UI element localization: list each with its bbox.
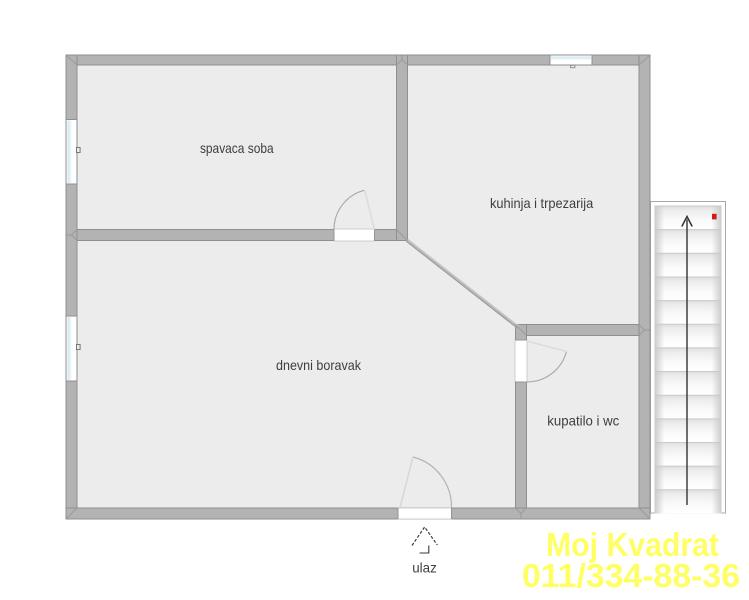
svg-text:kupatilo i wc: kupatilo i wc (547, 413, 619, 429)
svg-text:ulaz: ulaz (412, 560, 437, 576)
svg-text:011/334-88-36: 011/334-88-36 (522, 557, 740, 594)
svg-text:spavaca soba: spavaca soba (200, 140, 274, 156)
svg-text:dnevni boravak: dnevni boravak (276, 357, 362, 373)
svg-text:kuhinja i trpezarija: kuhinja i trpezarija (490, 195, 593, 211)
